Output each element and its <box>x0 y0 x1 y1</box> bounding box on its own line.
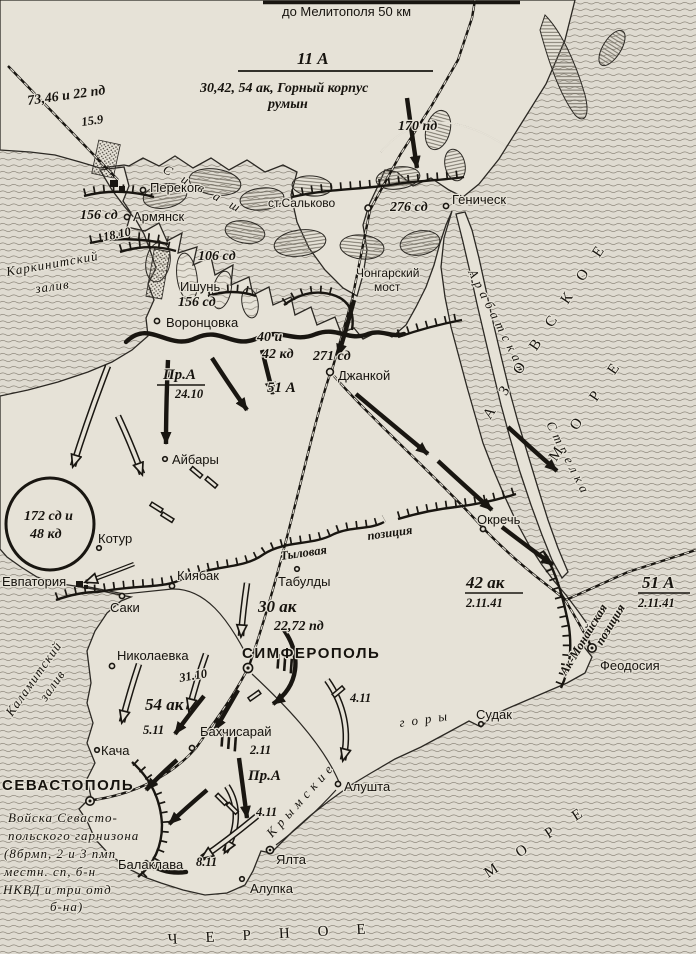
town-marker <box>189 745 194 750</box>
date-label: 2.11.41 <box>637 596 675 610</box>
town-marker <box>154 318 159 323</box>
town-marker <box>109 663 114 668</box>
place-label-chongar2: мост <box>374 280 401 294</box>
date-label: 8.11 <box>196 855 217 869</box>
place-label-vorontsovka: Воронцовка <box>166 315 239 330</box>
town-marker <box>140 187 145 192</box>
town-marker <box>480 526 485 531</box>
unit-label-prA: Пр.А <box>162 367 196 383</box>
date-label: 4.11 <box>349 691 371 705</box>
place-label-kotur: Котур <box>98 531 132 546</box>
unit-label-51A: 51 А <box>267 380 296 396</box>
town-marker <box>89 800 92 803</box>
town-marker <box>479 722 484 727</box>
unit-label-kd1: 40 и <box>256 330 283 345</box>
distance-note: до Мелитополя 50 км <box>282 4 411 19</box>
unit-label-pocket1: 172 сд и <box>24 509 73 524</box>
town-marker <box>95 748 100 753</box>
town-marker <box>295 567 300 572</box>
unit-label-51A-east: 51 А <box>642 573 675 592</box>
unit-label-pocket2: 48 кд <box>29 527 62 542</box>
town-marker <box>443 203 448 208</box>
date-label: 5.11 <box>143 723 164 737</box>
map-canvas: до Мелитополя 50 км 11 А 30,42, 54 ак, Г… <box>0 0 696 954</box>
date-label: 2.11.41 <box>465 596 503 610</box>
historical-map-crimea-1941: до Мелитополя 50 км 11 А 30,42, 54 ак, Г… <box>0 0 696 954</box>
unit-label-sd156b: 156 сд <box>178 295 216 310</box>
place-label-simferopol: СИМФЕРОПОЛЬ <box>242 645 380 662</box>
place-label-feodosia: Феодосия <box>600 658 660 673</box>
garrison-text-line: Войска Севасто- <box>8 810 118 825</box>
town-marker <box>591 647 594 650</box>
place-label-bakhchisarai: Бахчисарай <box>200 724 271 739</box>
garrison-text-line: НКВД и три отд <box>2 882 112 897</box>
unit-label-ak42: 42 ак <box>465 573 505 592</box>
army-11-composition: 30,42, 54 ак, Горный корпус <box>199 81 369 96</box>
unit-label-sd156: 156 сд <box>80 208 118 223</box>
town-marker <box>163 457 168 462</box>
place-label-nikolaevka: Николаевка <box>117 648 189 663</box>
garrison-text-line: (8брмп, 2 и 3 пмп <box>4 846 116 861</box>
town-marker <box>169 583 174 588</box>
place-label-aybary: Айбары <box>172 452 219 467</box>
place-label-kacha: Кача <box>101 743 130 758</box>
place-label-alupka: Алупка <box>250 881 294 896</box>
unit-label-sd106: 106 сд <box>198 249 236 264</box>
army-11-composition2: румын <box>267 97 308 112</box>
place-label-balaklava: Балаклава <box>118 857 184 872</box>
garrison-text-line: польского гарнизона <box>8 828 139 843</box>
unit-label-prA-south: Пр.А <box>247 768 281 784</box>
unit-label-ak30-divs: 22,72 пд <box>273 619 324 634</box>
town-marker <box>327 369 334 376</box>
place-label-salkovo: ст.Сальково <box>268 196 336 210</box>
place-label-saki: Саки <box>110 600 140 615</box>
garrison-text-line: местн. сп, б-н <box>3 864 96 879</box>
unit-label-ak30: 30 ак <box>257 597 297 616</box>
date-label: 24.10 <box>174 387 204 401</box>
town-marker <box>97 546 102 551</box>
place-label-sudak: Судак <box>476 707 512 722</box>
encircled-units-ring <box>6 478 94 570</box>
unit-label-sd276: 276 сд <box>389 200 428 215</box>
town-marker <box>119 593 124 598</box>
town-marker <box>240 877 245 882</box>
place-label-armyansk: Армянск <box>133 209 185 224</box>
town-marker <box>246 666 249 669</box>
town-marker <box>335 781 340 786</box>
place-label-ishun: Ишунь <box>180 279 220 294</box>
town-marker <box>119 186 125 191</box>
place-label-okrech: Окречь <box>477 512 521 527</box>
town-marker <box>84 585 88 589</box>
town-marker <box>76 581 83 587</box>
place-label-evpatoria: Евпатория <box>2 574 66 589</box>
garrison-text-line: б-на) <box>50 899 83 914</box>
unit-label-kd2: 42 кд <box>261 347 294 362</box>
town-marker <box>124 214 129 219</box>
place-label-tabuldy: Табулды <box>278 574 330 589</box>
town-marker <box>365 205 371 211</box>
place-label-chongar1: Чонгарский <box>356 266 419 280</box>
town-marker <box>269 849 272 852</box>
unit-label-ak54: 54 ак <box>145 695 184 714</box>
place-label-genichesk: Геническ <box>452 192 506 207</box>
place-label-alushta: Алушта <box>344 779 391 794</box>
town-marker <box>110 180 118 187</box>
place-label-sevastopol: СЕВАСТОПОЛЬ <box>2 777 134 794</box>
unit-label-pd170: 170 пд <box>398 119 437 134</box>
place-label-yalta: Ялта <box>276 852 307 867</box>
place-label-dzhankoy: Джанкой <box>338 368 390 383</box>
place-label-kiyabak: Киябак <box>177 568 219 583</box>
unit-label-sd271: 271 сд <box>312 349 351 364</box>
army-11-label: 11 А <box>297 49 329 68</box>
date-label: 2.11 <box>249 743 271 757</box>
